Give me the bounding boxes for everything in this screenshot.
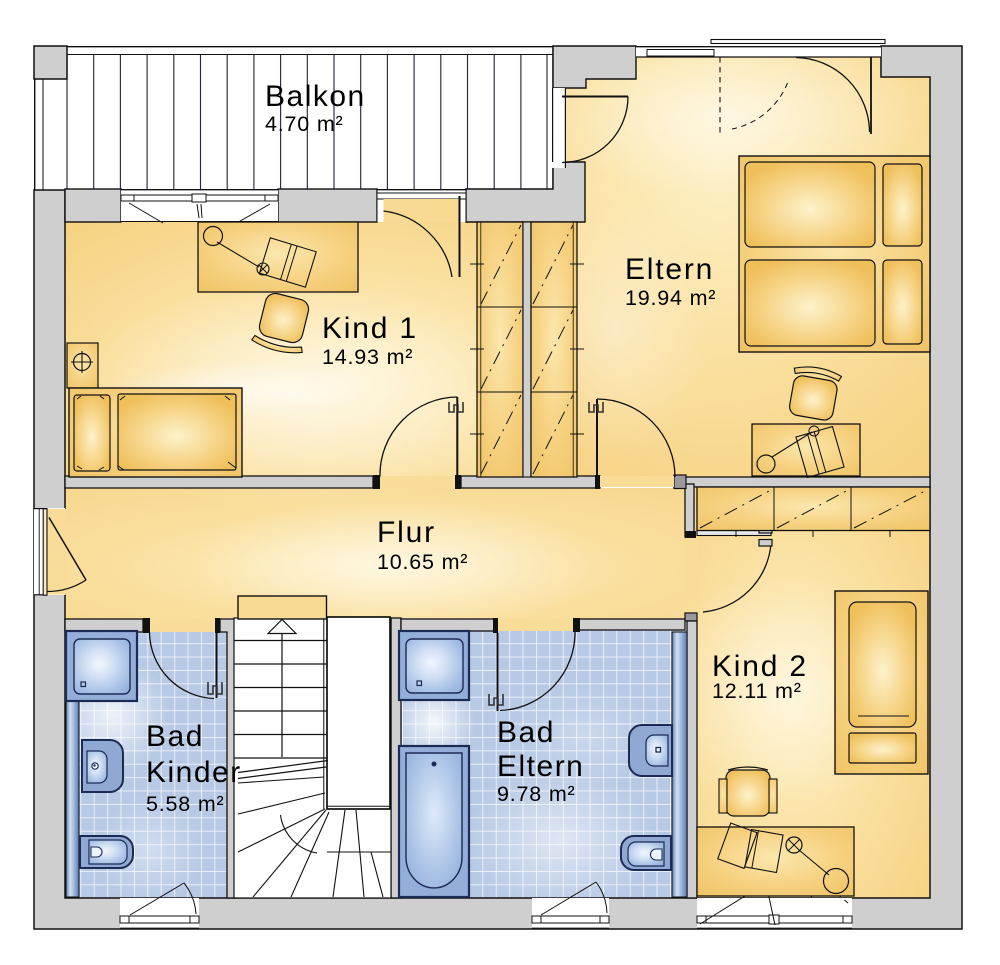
svg-text:Eltern: Eltern [625,253,714,286]
svg-text:9.78 m²: 9.78 m² [497,782,576,806]
svg-text:Eltern: Eltern [497,750,584,783]
svg-text:19.94 m²: 19.94 m² [625,286,716,310]
svg-text:4.70 m²: 4.70 m² [265,112,344,136]
svg-text:14.93 m²: 14.93 m² [322,345,413,369]
svg-text:Bad: Bad [146,720,204,753]
svg-text:Flur: Flur [377,516,436,549]
svg-text:Bad: Bad [497,716,555,749]
svg-text:12.11 m²: 12.11 m² [712,679,802,703]
svg-text:5.58 m²: 5.58 m² [146,792,225,816]
svg-text:10.65 m²: 10.65 m² [377,550,468,574]
svg-text:Balkon: Balkon [265,80,366,113]
svg-text:Kind 1: Kind 1 [322,312,418,345]
svg-text:Kinder: Kinder [146,756,242,789]
